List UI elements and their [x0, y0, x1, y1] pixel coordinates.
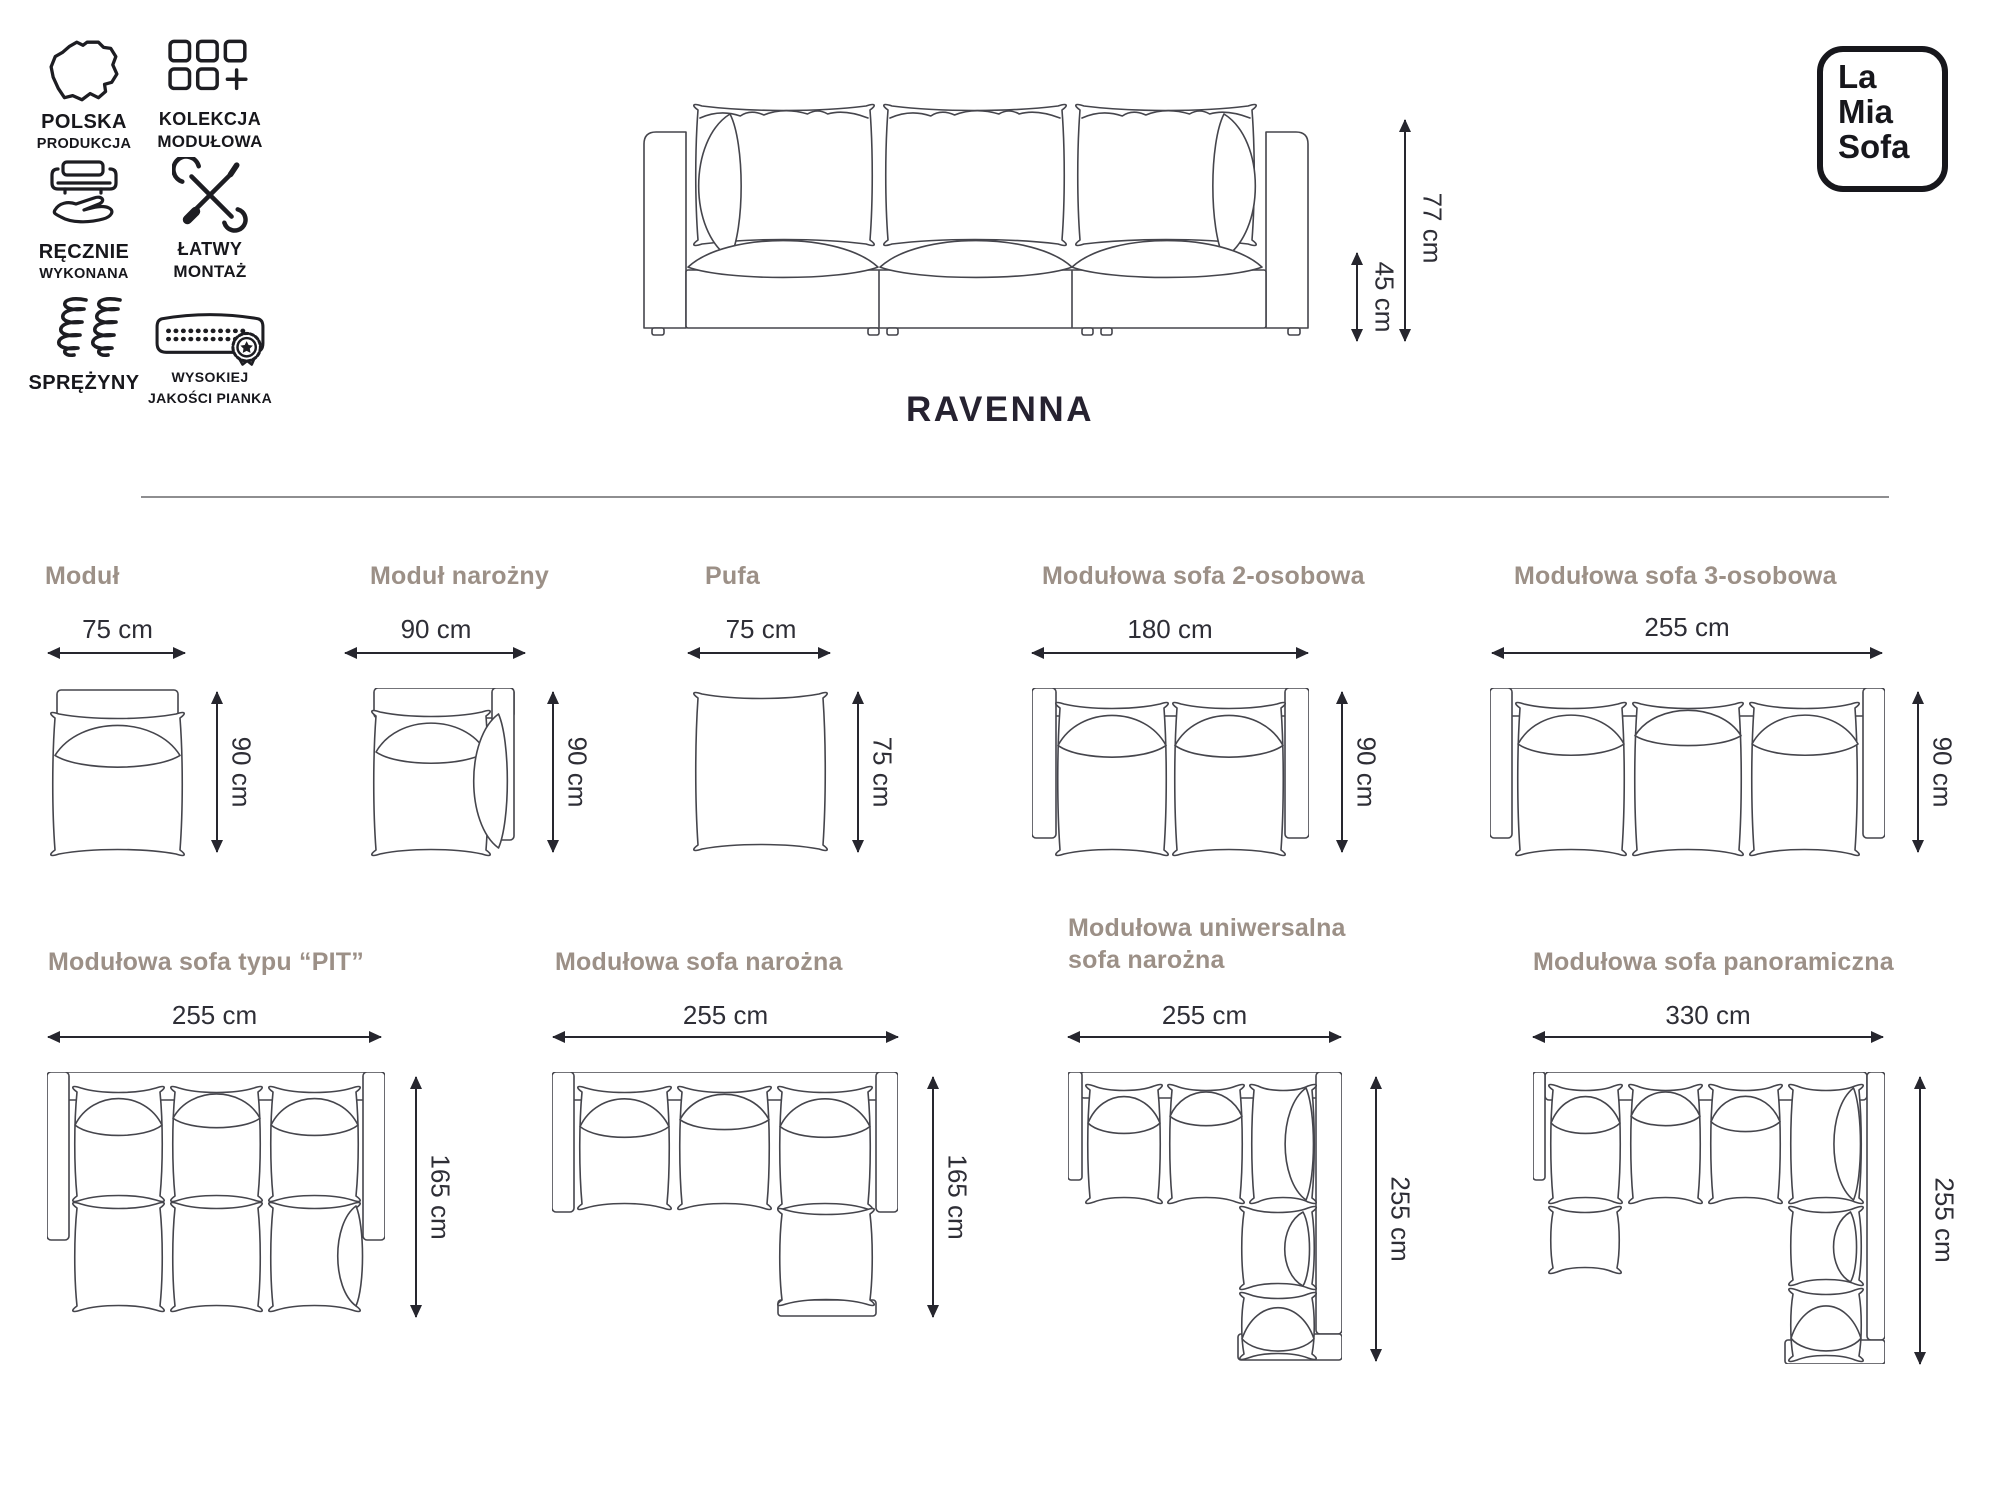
- poland-map-icon: [47, 24, 121, 105]
- module-title: Moduł narożny: [370, 560, 549, 592]
- feature-sublabel: WYKONANA: [39, 266, 128, 282]
- feature-sprezyny: SPRĘŻYNY: [26, 284, 142, 412]
- height-dimension-label: 90 cm: [1927, 737, 1958, 808]
- springs-icon: [44, 284, 124, 366]
- height-dimension-label: 255 cm: [1929, 1177, 1960, 1262]
- feature-badges: POLSKA PRODUKCJA KOLEKCJA MODUŁOWA: [26, 24, 272, 412]
- width-dimension-label: 75 cm: [45, 614, 190, 645]
- module-title: Modułowa sofa panoramiczna: [1533, 946, 1894, 978]
- module-top-view-drawing: [47, 1072, 385, 1322]
- feature-latwy-montaz: ŁATWY MONTAŻ: [148, 154, 272, 282]
- module-title-line: Modułowa uniwersalna: [1068, 912, 1346, 944]
- module-title: Moduł: [45, 560, 120, 592]
- module-title: Pufa: [705, 560, 760, 592]
- height-dimension-arrow: [1341, 692, 1343, 852]
- height-dimension-arrow: [857, 692, 859, 852]
- module-top-view-drawing: [45, 688, 190, 865]
- height-dimension-label: 255 cm: [1385, 1176, 1416, 1261]
- width-dimension-label: 255 cm: [48, 1000, 381, 1031]
- section-divider: [141, 496, 1889, 498]
- width-dimension-label: 90 cm: [362, 614, 510, 645]
- height-dimension-arrow: [1919, 1077, 1921, 1364]
- feature-label: KOLEKCJA: [159, 109, 261, 130]
- width-dimension-arrow: [48, 1036, 381, 1038]
- width-dimension-label: 330 cm: [1533, 1000, 1883, 1031]
- module-top-view-drawing: [368, 688, 520, 865]
- feature-sublabel: PRODUKCJA: [37, 136, 132, 152]
- width-dimension-arrow: [345, 652, 525, 654]
- module-title: Modułowa sofa 2-osobowa: [1042, 560, 1365, 592]
- total-height-dimension-label: 77 cm: [1417, 193, 1448, 264]
- feature-label: POLSKA: [41, 111, 127, 134]
- module-top-view-drawing: [552, 1072, 898, 1322]
- width-dimension-label: 75 cm: [688, 614, 834, 645]
- product-name: RAVENNA: [850, 390, 1150, 430]
- height-dimension-label: 75 cm: [867, 737, 898, 808]
- width-dimension-label: 255 cm: [553, 1000, 898, 1031]
- width-dimension-arrow: [553, 1036, 898, 1038]
- module-top-view-drawing: [1490, 688, 1885, 865]
- module-title: Modułowa sofa narożna: [555, 946, 843, 978]
- width-dimension-label: 255 cm: [1492, 612, 1882, 643]
- total-height-dimension-arrow: [1404, 120, 1406, 341]
- feature-label: RĘCZNIE: [39, 241, 130, 264]
- logo-line: Mia: [1838, 95, 1942, 130]
- height-dimension-arrow: [932, 1077, 934, 1317]
- seat-height-dimension-arrow: [1356, 253, 1358, 341]
- feature-sublabel: JAKOŚCI PIANKA: [148, 389, 272, 408]
- width-dimension-arrow: [688, 652, 830, 654]
- width-dimension-arrow: [1533, 1036, 1883, 1038]
- module-top-view-drawing: [1533, 1072, 1885, 1369]
- logo-line: Sofa: [1838, 130, 1942, 165]
- height-dimension-label: 90 cm: [226, 737, 257, 808]
- feature-sublabel: MODUŁOWA: [157, 132, 262, 152]
- module-top-view-drawing: [688, 688, 833, 860]
- logo-line: La: [1838, 60, 1942, 95]
- modules-grid-icon: [167, 24, 253, 103]
- width-dimension-arrow: [1068, 1036, 1341, 1038]
- width-dimension-arrow: [1032, 652, 1308, 654]
- seat-height-dimension-label: 45 cm: [1369, 262, 1400, 333]
- height-dimension-arrow: [216, 692, 218, 852]
- sofa-front-view-drawing: [640, 80, 1312, 347]
- height-dimension-arrow: [1375, 1077, 1377, 1361]
- width-dimension-label: 255 cm: [1068, 1000, 1341, 1031]
- width-dimension-arrow: [1492, 652, 1882, 654]
- feature-label: SPRĘŻYNY: [28, 372, 139, 395]
- feature-sublabel: MONTAŻ: [173, 262, 246, 282]
- feature-wysokiej-jakosci-pianka: WYSOKIEJ JAKOŚCI PIANKA: [148, 284, 272, 412]
- product-spec-sheet: POLSKA PRODUKCJA KOLEKCJA MODUŁOWA: [0, 0, 2000, 1500]
- module-top-view-drawing: [1068, 1072, 1342, 1367]
- feature-polska-produkcja: POLSKA PRODUKCJA: [26, 24, 142, 152]
- module-top-view-drawing: [1032, 688, 1309, 865]
- feature-recznie-wykonana: RĘCZNIE WYKONANA: [26, 154, 142, 282]
- width-dimension-label: 180 cm: [1032, 614, 1308, 645]
- module-title: Modułowa uniwersalna sofa narożna: [1068, 912, 1346, 976]
- feature-label: ŁATWY: [178, 239, 243, 260]
- handmade-icon: [45, 154, 123, 235]
- foam-quality-icon: [153, 284, 267, 366]
- height-dimension-label: 165 cm: [425, 1154, 456, 1239]
- module-title: Modułowa sofa 3-osobowa: [1514, 560, 1837, 592]
- height-dimension-label: 90 cm: [1351, 737, 1382, 808]
- brand-logo: La Mia Sofa: [1817, 46, 1948, 192]
- height-dimension-arrow: [415, 1077, 417, 1317]
- feature-kolekcja-modulowa: KOLEKCJA MODUŁOWA: [148, 24, 272, 152]
- height-dimension-arrow: [1917, 692, 1919, 852]
- module-title: Modułowa sofa typu “PIT”: [48, 946, 364, 978]
- feature-label: WYSOKIEJ: [171, 368, 248, 387]
- module-title-line: sofa narożna: [1068, 944, 1346, 976]
- height-dimension-label: 90 cm: [562, 737, 593, 808]
- tools-icon: [172, 154, 248, 233]
- height-dimension-arrow: [552, 692, 554, 852]
- height-dimension-label: 165 cm: [942, 1154, 973, 1239]
- width-dimension-arrow: [48, 652, 185, 654]
